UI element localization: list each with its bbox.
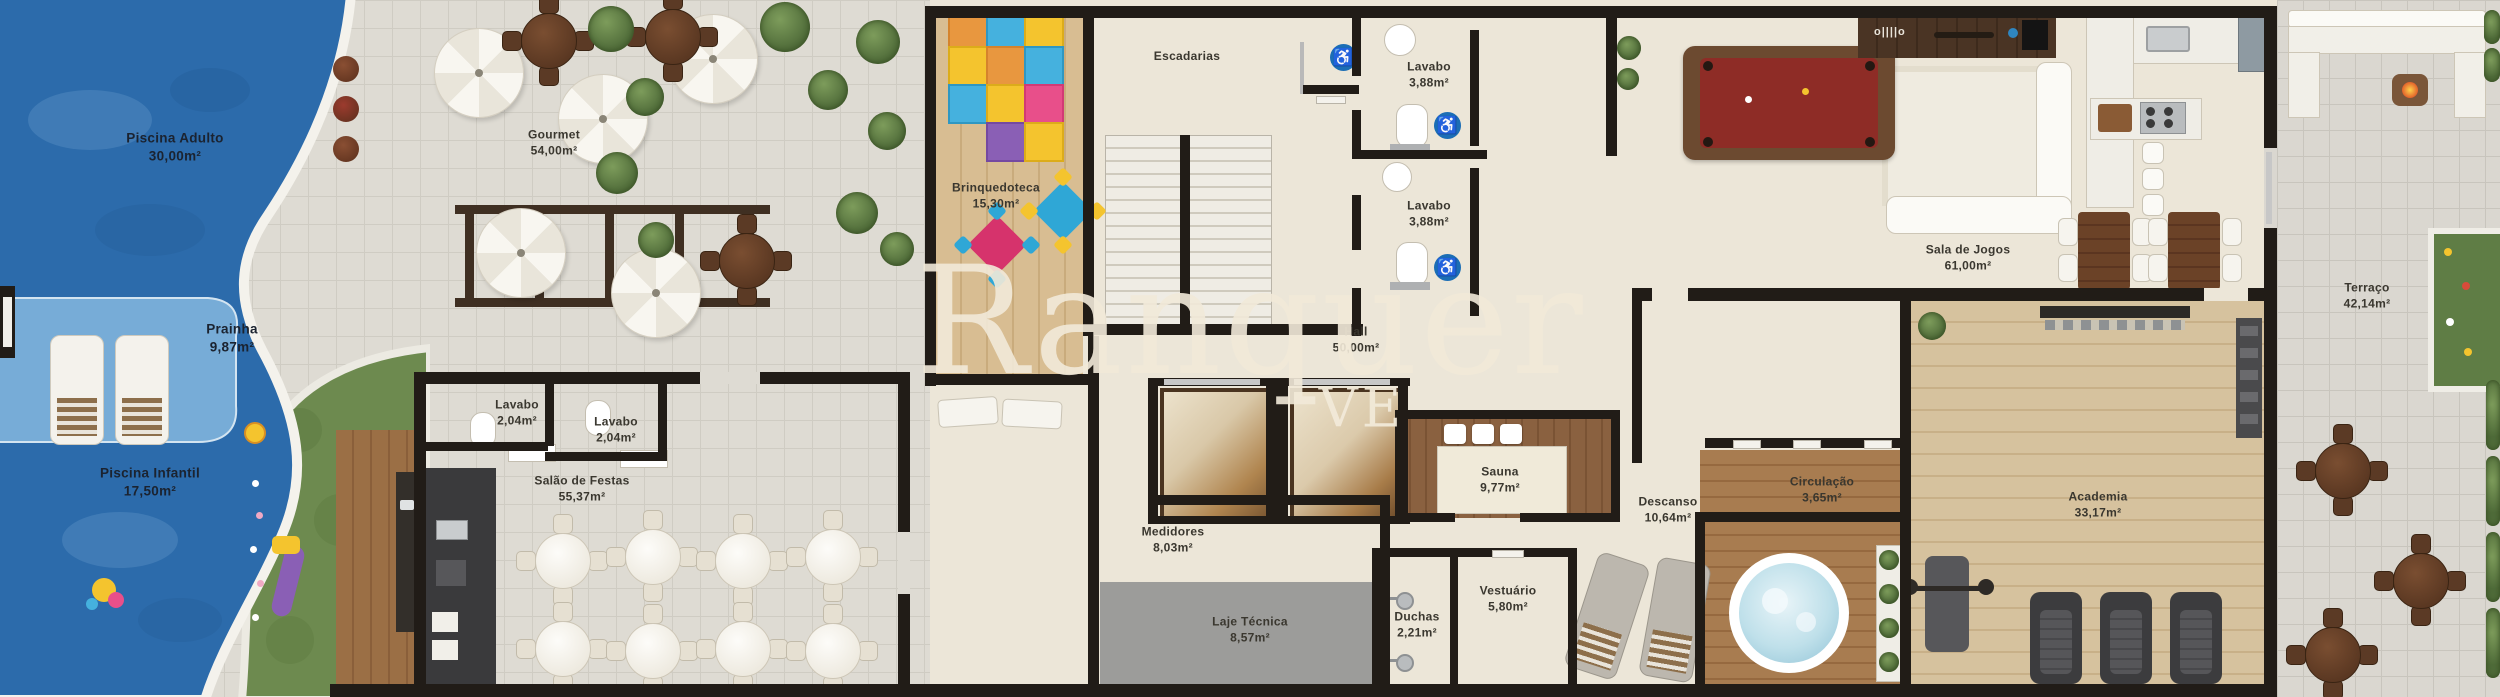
outdoor-sofa-side <box>2454 52 2486 118</box>
hot-tub-water <box>1739 563 1839 663</box>
room-label-sauna: Sauna9,77m² <box>1480 464 1520 495</box>
stove <box>436 560 466 586</box>
billiard-pocket <box>1865 61 1875 71</box>
party-table-set <box>696 602 788 694</box>
elevator-wall <box>1148 516 1410 524</box>
terrace-table-set <box>2286 608 2378 697</box>
appliance <box>432 640 458 660</box>
hot-tub-foam <box>1796 612 1816 632</box>
flower <box>2444 248 2452 256</box>
wall <box>1568 548 1577 686</box>
room-label-duchas: Duchas2,21m² <box>1394 609 1439 640</box>
sink <box>1384 24 1416 56</box>
toilet-tank <box>1390 282 1430 290</box>
wall <box>1900 288 1911 684</box>
room-label-gourmet: Gourmet54,00m² <box>528 127 580 158</box>
wall <box>1695 512 1705 684</box>
door <box>1793 440 1821 449</box>
room-label-terraco: Terraço42,14m² <box>2344 280 2391 311</box>
gourmet-table-set <box>626 0 718 82</box>
indoor-plant <box>1617 36 1641 60</box>
burner <box>2164 119 2173 128</box>
flower <box>256 512 263 519</box>
wall <box>1395 513 1455 522</box>
cutting-board <box>2098 104 2132 132</box>
barbell-plate <box>1978 579 1994 595</box>
flower-planter <box>2428 228 2500 392</box>
wall <box>1088 336 1099 684</box>
hedge <box>2484 48 2500 82</box>
terrace-table-set <box>2296 424 2388 516</box>
towel <box>1444 424 1466 444</box>
gym-rack-weights <box>2045 320 2185 330</box>
bar-stool <box>2142 168 2164 190</box>
wall <box>2264 6 2277 684</box>
refrigerator <box>2238 14 2266 72</box>
room-label-circulacao: Circulação3,65m² <box>1790 474 1854 505</box>
dumbbell-rows <box>2240 326 2258 430</box>
street-door <box>3 297 12 347</box>
vine-plant <box>596 152 638 194</box>
wall <box>330 684 2277 697</box>
billiard-pocket <box>1865 137 1875 147</box>
treadmill <box>2170 592 2222 684</box>
room-label-prainha: Prainha9,87m² <box>206 320 258 355</box>
wall <box>1640 288 2264 301</box>
planter-pot <box>333 96 359 122</box>
billiard-pocket <box>1703 137 1713 147</box>
sofa <box>1886 196 2072 234</box>
dining-chair <box>2148 218 2168 246</box>
stairs-divider <box>1180 135 1190 325</box>
pergola-post <box>465 205 474 305</box>
floor-plan: ♿ ♿ ♿ <box>0 0 2500 697</box>
kitchen-sink <box>2146 26 2190 52</box>
wall <box>545 384 554 446</box>
towel <box>1500 424 1522 444</box>
wall <box>1155 495 1390 505</box>
party-table-set <box>606 510 698 602</box>
wall <box>898 372 910 684</box>
soundbar <box>1934 32 1994 38</box>
towel <box>1472 424 1494 444</box>
room-label-lavabo-2: Lavabo3,88m² <box>1407 198 1451 229</box>
vine-plant <box>880 232 914 266</box>
speaker <box>2008 28 2018 38</box>
gym-rack <box>2040 306 2190 318</box>
rug <box>1882 66 2046 206</box>
party-table-set <box>696 514 788 606</box>
tv-screen <box>2022 20 2048 50</box>
flower <box>2446 318 2454 326</box>
appliance <box>432 612 458 632</box>
room-label-lavabo-4: Lavabo2,04m² <box>594 414 638 445</box>
toilet <box>1396 104 1428 148</box>
party-entry-gap <box>700 372 760 384</box>
fire-flame <box>2402 82 2418 98</box>
vine-plant <box>626 78 664 116</box>
pool-toy <box>108 592 124 608</box>
toilet <box>1396 242 1428 286</box>
party-side-gap <box>898 532 910 594</box>
flower <box>250 546 257 553</box>
room-label-sala-de-jogos: Sala de Jogos61,00m² <box>1926 242 2011 273</box>
burner <box>2146 119 2155 128</box>
flower <box>252 614 259 621</box>
wall <box>1606 6 1617 156</box>
room-label-lavabo-1: Lavabo3,88m² <box>1407 59 1451 90</box>
umbrella-table <box>611 248 701 338</box>
vine-plant <box>836 192 878 234</box>
room-label-academia: Academia33,17m² <box>2068 489 2127 520</box>
outdoor-sofa-seat <box>2288 26 2486 54</box>
burner <box>2164 107 2173 116</box>
shower-head <box>1396 654 1414 672</box>
hedge <box>2486 608 2500 678</box>
billiard-ball <box>1802 88 1809 95</box>
wall <box>1352 195 1361 250</box>
treadmill <box>2100 592 2152 684</box>
flower <box>2464 348 2472 356</box>
vine-plant <box>588 6 634 52</box>
door <box>1864 440 1892 449</box>
umbrella-table <box>476 208 566 298</box>
party-table-set <box>786 604 878 696</box>
shower-head <box>1396 592 1414 610</box>
vine-plant <box>808 70 848 110</box>
room-label-laje-tecnica: Laje Técnica8,57m² <box>1212 614 1288 645</box>
wall <box>1611 410 1620 522</box>
terrace-door <box>2266 152 2272 224</box>
party-table-set <box>516 602 608 694</box>
wall <box>658 384 667 456</box>
wall <box>925 6 936 386</box>
wall <box>925 374 1094 385</box>
room-label-vestuario: Vestuário5,80m² <box>1480 583 1537 614</box>
dining-chair <box>2148 254 2168 282</box>
wall <box>1352 150 1487 159</box>
cooktop <box>2140 102 2186 134</box>
terrace-table-set <box>2374 534 2466 626</box>
room-label-medidores: Medidores8,03m² <box>1142 524 1205 555</box>
dining-table <box>2168 212 2220 290</box>
wall <box>1450 556 1458 684</box>
party-table-set <box>516 514 608 606</box>
door-gap <box>2204 288 2248 301</box>
console-vent-icon: o||||o <box>1874 26 1906 38</box>
wall <box>414 372 426 684</box>
dining-chair <box>2222 254 2242 282</box>
door <box>1492 550 1524 558</box>
flower <box>257 580 264 587</box>
billiard-felt <box>1700 58 1878 148</box>
hedge <box>2484 10 2500 44</box>
wall <box>925 6 2277 18</box>
wall <box>1705 512 1908 522</box>
wall <box>545 452 667 461</box>
elevator-door <box>1164 379 1260 385</box>
billiard-pocket <box>1703 61 1713 71</box>
wall <box>1352 6 1361 76</box>
room-label-lavabo-3: Lavabo2,04m² <box>495 397 539 428</box>
bar-stool <box>2142 142 2164 164</box>
wall <box>1470 168 1479 316</box>
planter-pot <box>333 136 359 162</box>
door-gap <box>1652 288 1688 301</box>
gym-plant <box>1918 312 1946 340</box>
party-table-set <box>606 604 698 696</box>
dining-table <box>2078 212 2130 290</box>
pool-lounger <box>50 335 104 445</box>
wall <box>1395 410 1404 522</box>
wall <box>1380 495 1390 685</box>
pool-toy <box>86 598 98 610</box>
room-label-escadarias: Escadarias <box>1154 49 1220 65</box>
door <box>1733 440 1761 449</box>
wall <box>1083 6 1094 336</box>
playground-slide-top <box>272 536 300 554</box>
wall <box>1083 324 1363 335</box>
barbell <box>1908 586 1988 591</box>
vine-plant <box>638 222 674 258</box>
bench <box>937 396 999 428</box>
room-label-salao-de-festas: Salão de Festas55,37m² <box>534 473 629 504</box>
bar-sink <box>400 500 414 510</box>
wall <box>1632 288 1642 463</box>
bar-stool <box>2142 194 2164 216</box>
wall <box>1303 85 1359 94</box>
vine-plant <box>760 2 810 52</box>
treadmill <box>2030 592 2082 684</box>
elevator-door <box>1294 379 1390 385</box>
flower <box>252 480 259 487</box>
vine-plant <box>856 20 900 64</box>
hedge <box>2486 456 2500 526</box>
hot-tub-foam <box>1762 588 1788 614</box>
wall <box>426 442 548 451</box>
sink <box>436 520 468 540</box>
gourmet-table-set <box>502 0 594 86</box>
room-label-piscina-infantil: Piscina Infantil17,50m² <box>100 464 200 499</box>
accessible-icon: ♿ <box>1434 112 1461 139</box>
dining-chair <box>2058 218 2078 246</box>
bench <box>1001 398 1062 429</box>
wall <box>1395 410 1620 419</box>
planter-pot <box>333 56 359 82</box>
wall <box>414 372 909 384</box>
pool-lounger <box>115 335 169 445</box>
party-table-set <box>786 510 878 602</box>
billiard-ball <box>1745 96 1752 103</box>
outdoor-sofa-side <box>2288 52 2320 118</box>
dining-chair <box>2222 218 2242 246</box>
sink <box>1382 162 1412 192</box>
indoor-plant <box>1617 68 1639 90</box>
spring-toy <box>244 422 266 444</box>
wall <box>1372 548 1577 557</box>
hedge <box>2486 380 2500 450</box>
wc-door <box>1316 96 1346 104</box>
accessible-icon: ♿ <box>1434 254 1461 281</box>
dining-chair <box>2058 254 2078 282</box>
room-label-descanso: Descanso10,64m² <box>1638 494 1697 525</box>
gourmet-table-set <box>700 214 792 306</box>
flower <box>2462 282 2470 290</box>
room-label-brinquedoteca: Brinquedoteca15,30m² <box>952 180 1040 211</box>
wall <box>1520 513 1620 522</box>
room-label-hall: Hall50,00m² <box>1333 324 1380 355</box>
burner <box>2146 107 2155 116</box>
wall <box>1470 30 1479 146</box>
vine-plant <box>868 112 906 150</box>
gym-bench <box>1925 556 1969 652</box>
hedge <box>2486 532 2500 602</box>
room-label-piscina-adulto: Piscina Adulto30,00m² <box>126 129 223 164</box>
